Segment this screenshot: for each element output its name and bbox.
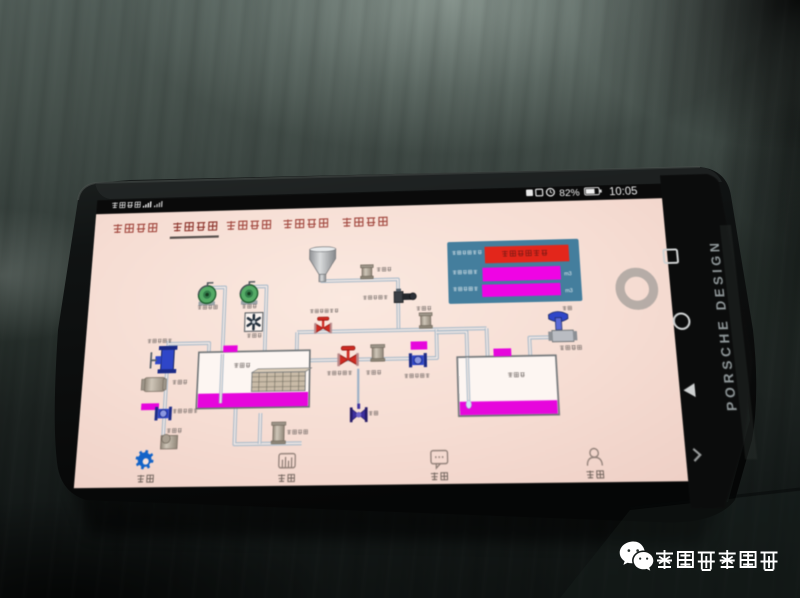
- svg-text:10:05: 10:05: [609, 186, 639, 198]
- svg-text:82%: 82%: [559, 187, 580, 198]
- svg-text:m3: m3: [565, 288, 573, 295]
- svg-text:m3: m3: [564, 271, 572, 278]
